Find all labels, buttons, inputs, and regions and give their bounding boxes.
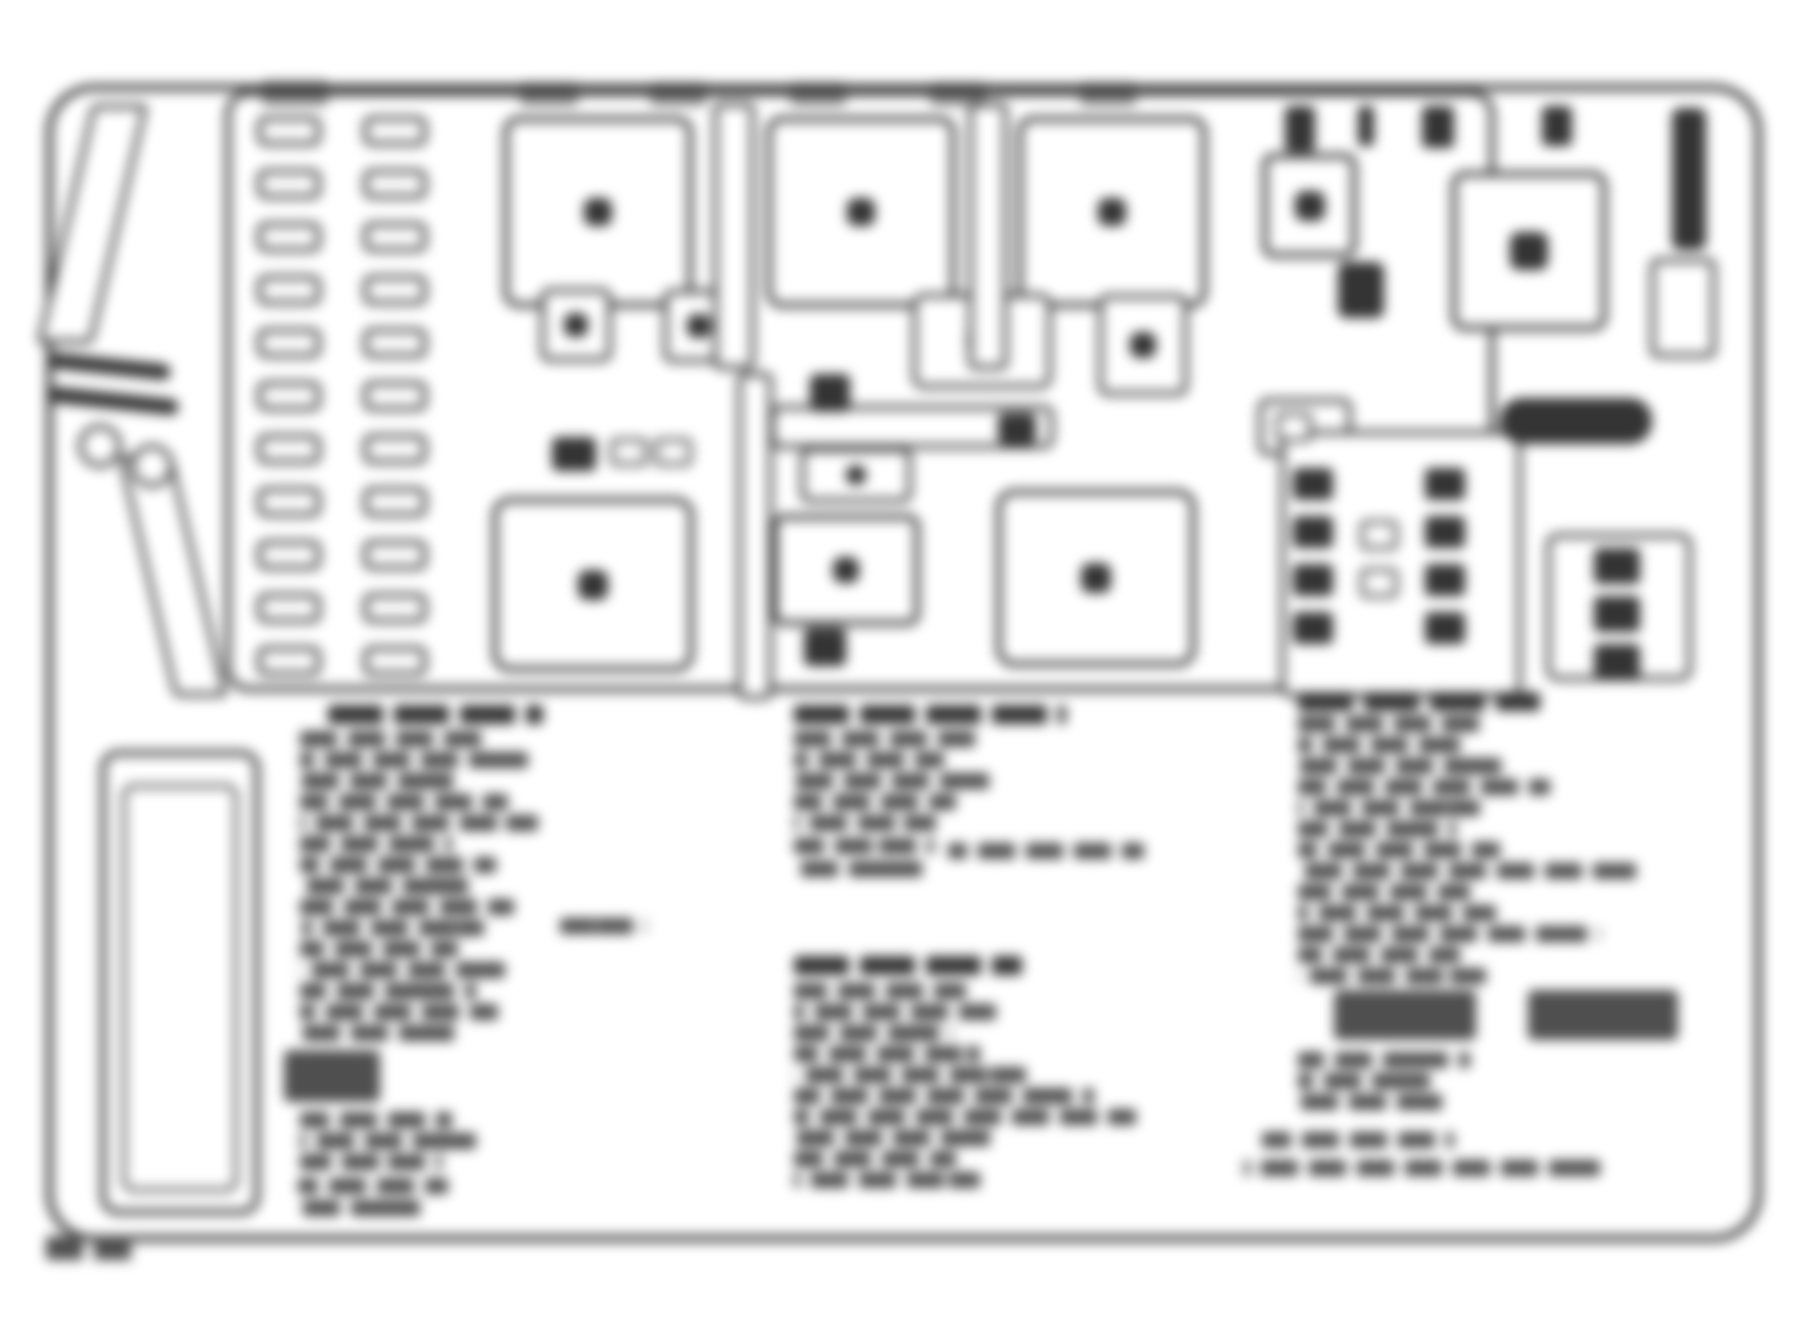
blurred-fuse-block-diagram-page (0, 0, 1811, 1331)
bottom-left-panel-inner (122, 784, 238, 1192)
legend-line-right (1298, 926, 1600, 942)
top-tab (930, 82, 986, 106)
top-tab (520, 82, 578, 106)
dark-mark (1422, 106, 1454, 148)
relay-dot (1098, 198, 1126, 226)
legend-line-middle (948, 843, 1144, 859)
legend-line-left (300, 941, 458, 957)
bolt-ring (130, 444, 174, 488)
small-cavity (610, 438, 648, 466)
legend-bold-block-right (1334, 990, 1476, 1040)
legend-line-middle (794, 794, 956, 810)
legend-line-right (1298, 800, 1480, 816)
legend-line-right (1298, 947, 1460, 963)
legend-line-left (300, 1133, 476, 1149)
fuse (257, 434, 321, 464)
legend-line-right (1298, 884, 1470, 900)
fuse (363, 540, 427, 570)
dark-mark (810, 374, 850, 412)
figure-id-text-blur (46, 1236, 138, 1260)
fuse (363, 275, 427, 305)
fuse (257, 593, 321, 623)
fuse (257, 222, 321, 252)
legend-line-right (1298, 968, 1486, 984)
top-tab (262, 80, 328, 106)
legend-bold-block-left (284, 1050, 380, 1102)
legend-line-middle (794, 731, 976, 747)
legend-line-left (300, 1025, 462, 1041)
legend-line-right (1298, 758, 1510, 774)
legend-line-middle (794, 773, 998, 789)
small-cavity (1360, 520, 1398, 550)
relay-dot (1081, 563, 1111, 593)
dark-mark (1293, 516, 1333, 548)
fuse (257, 646, 321, 676)
fuse (363, 646, 427, 676)
top-tab (650, 82, 706, 106)
legend-line-middle (794, 1172, 980, 1188)
top-tab (1080, 82, 1136, 106)
legend-heading-right (1298, 692, 1540, 711)
dark-mark (1285, 106, 1315, 152)
dark-mark (1293, 564, 1333, 596)
fuse (363, 328, 427, 358)
dark-mark (1425, 564, 1465, 596)
fuse (257, 540, 321, 570)
legend-line-left (300, 962, 505, 978)
legend-line-middle (794, 1067, 1026, 1083)
fuse (363, 434, 427, 464)
fuse (257, 381, 321, 411)
fuse (257, 275, 321, 305)
legend-line-right (1262, 1132, 1454, 1148)
relay-dot (1510, 232, 1548, 270)
legend-line-right (1298, 1094, 1450, 1110)
panel-box (737, 372, 773, 700)
small-cavity (1650, 258, 1716, 358)
relay-dot (578, 570, 608, 600)
legend-heading-middle (794, 956, 1022, 975)
panel-box (968, 102, 1008, 370)
legend-line-right (1298, 779, 1550, 795)
fuse (257, 328, 321, 358)
legend-line-middle (794, 838, 934, 854)
dark-mark (1338, 262, 1384, 318)
top-tab (790, 82, 846, 106)
dark-mark (1293, 612, 1333, 644)
dark-mark (1425, 516, 1465, 548)
dark-mark (1594, 596, 1640, 632)
dark-mark (1425, 612, 1465, 644)
fuse (363, 487, 427, 517)
legend-line-left (300, 1112, 452, 1128)
dark-mark (1293, 468, 1333, 500)
legend-heading-middle (794, 705, 1066, 724)
relay-dot (833, 557, 859, 583)
legend-line-left (300, 731, 485, 747)
legend-line-left (300, 836, 452, 852)
panel-box (713, 102, 755, 370)
fuse (363, 222, 427, 252)
small-cavity (1276, 412, 1312, 442)
legend-line-left (300, 1154, 442, 1170)
fuse (257, 116, 321, 146)
fuse (363, 381, 427, 411)
legend-line-middle (794, 1130, 998, 1146)
diagram-art-layer (0, 0, 1811, 1331)
legend-line-middle (794, 1151, 956, 1167)
legend-line-right (1298, 737, 1460, 753)
legend-line-right (1298, 863, 1640, 879)
bolt-ring (78, 424, 122, 468)
dark-mark (1594, 644, 1640, 680)
relay-dot (687, 314, 711, 338)
legend-line-right (1298, 842, 1500, 858)
legend-line-middle (794, 1046, 980, 1062)
legend-line-left (300, 1004, 498, 1020)
legend-line-middle (794, 983, 966, 999)
legend-line-right (1298, 905, 1496, 921)
legend-line-right (1298, 1052, 1470, 1068)
dark-mark (552, 437, 596, 471)
legend-line-right (1244, 1160, 1600, 1176)
legend-line-left (300, 899, 514, 915)
relay-dot (1295, 191, 1325, 221)
dark-mark (804, 628, 846, 666)
dark-mark (1425, 468, 1465, 500)
dark-mark (1358, 106, 1374, 146)
fuse (257, 169, 321, 199)
dark-mark (1500, 398, 1652, 444)
fuse (363, 169, 427, 199)
small-cavity (654, 438, 692, 466)
relay-dot (847, 198, 875, 226)
legend-line-left (302, 920, 484, 936)
relay-dot (1130, 332, 1156, 358)
legend-line-left (300, 815, 538, 831)
dark-mark (1542, 106, 1572, 146)
legend-heading-left (328, 705, 543, 724)
legend-line-left (300, 773, 462, 789)
dark-mark (1594, 548, 1640, 584)
fuse (363, 593, 427, 623)
legend-line-middle (794, 752, 944, 768)
legend-line-left (300, 752, 528, 768)
legend-line-left (300, 983, 476, 999)
legend-line-left (298, 1178, 448, 1194)
legend-line-left (300, 878, 472, 894)
small-cavity (1360, 568, 1398, 598)
relay-dot (584, 198, 612, 226)
legend-line-middle (794, 815, 936, 831)
fuse (257, 487, 321, 517)
legend-line-left (295, 1200, 423, 1216)
dark-mark (1672, 108, 1706, 250)
legend-bold-block-right (1528, 990, 1678, 1040)
legend-line-middle (794, 1109, 1136, 1125)
relay-dot (846, 465, 866, 485)
dark-mark (998, 413, 1036, 444)
legend-line-left (300, 857, 496, 873)
legend-line-middle (794, 1004, 996, 1020)
legend-line-right (1298, 821, 1456, 837)
legend-line-right (1298, 1073, 1430, 1089)
legend-line-left (560, 918, 646, 934)
legend-line-middle (794, 1025, 952, 1041)
legend-line-middle (794, 1088, 1094, 1104)
legend-line-middle (794, 861, 926, 877)
legend-line-right (1298, 716, 1490, 732)
relay-dot (564, 313, 588, 337)
legend-line-left (300, 794, 508, 810)
fuse (363, 116, 427, 146)
